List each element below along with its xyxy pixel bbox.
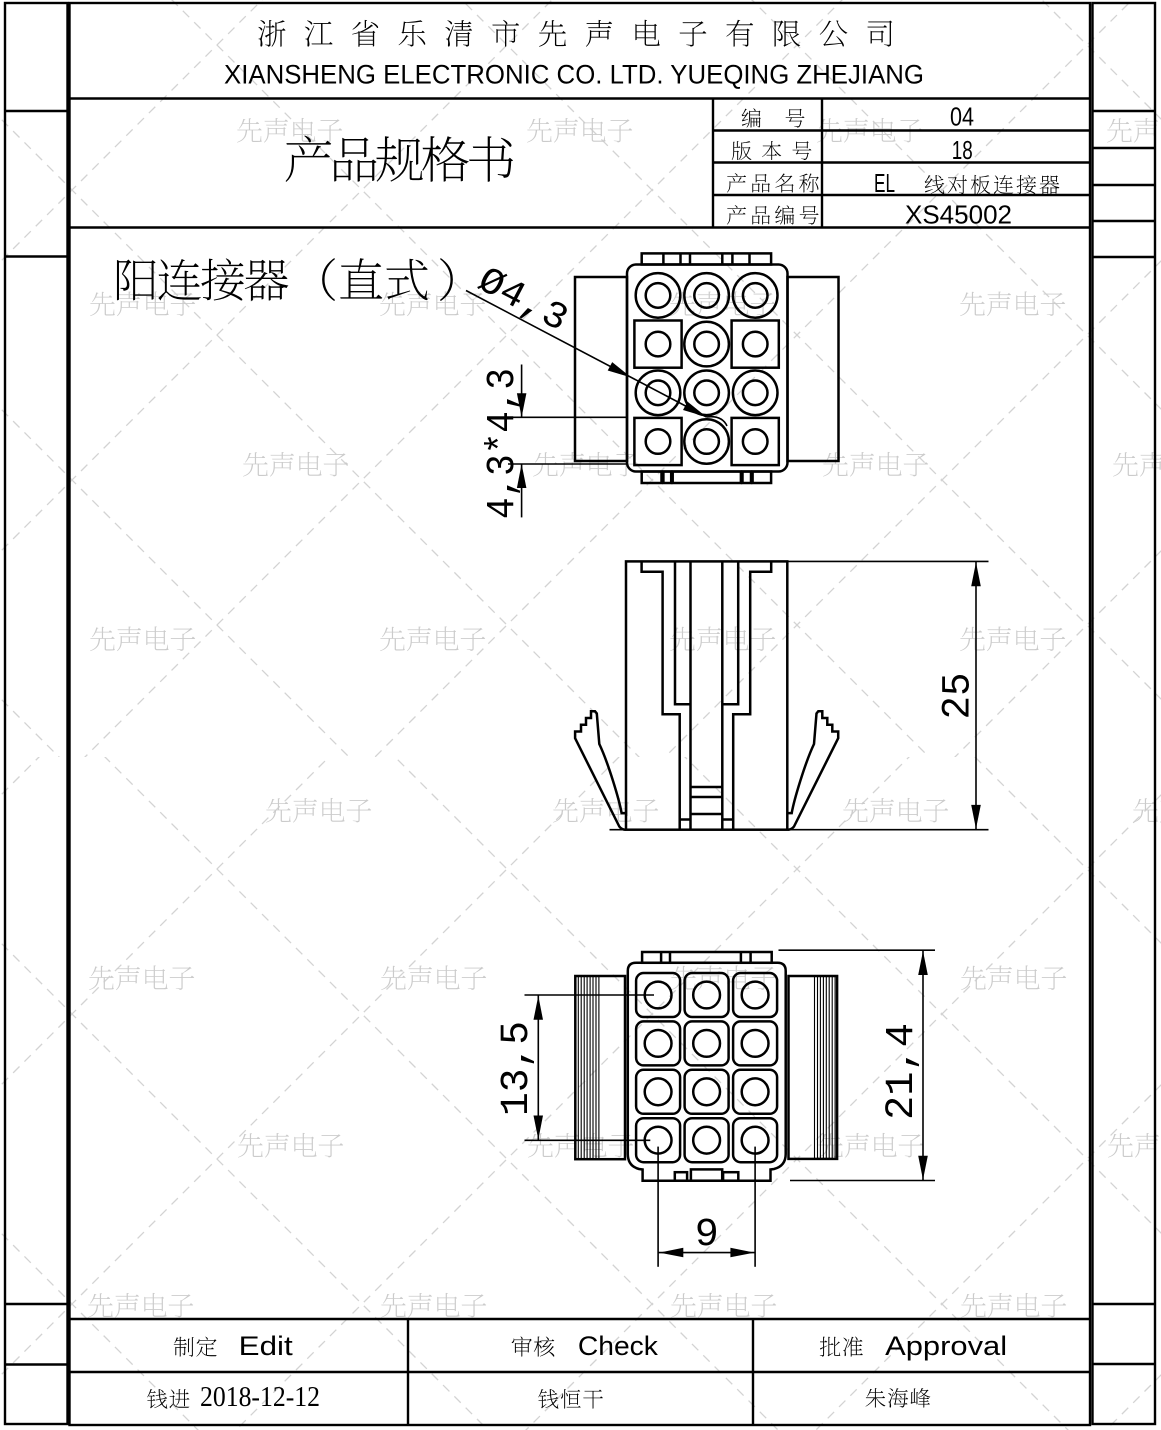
svg-text:XIANSHENG ELECTRONIC CO. LTD.: XIANSHENG ELECTRONIC CO. LTD. YUEQING ZH…: [224, 60, 924, 90]
svg-text:13,5: 13,5: [495, 1021, 540, 1116]
svg-text:9: 9: [695, 1213, 719, 1258]
svg-text:21,4: 21,4: [880, 1023, 925, 1120]
svg-text:Check: Check: [578, 1331, 659, 1361]
svg-text:18: 18: [952, 135, 973, 165]
svg-text:Ø4,3: Ø4,3: [470, 260, 574, 342]
svg-text:04: 04: [950, 102, 974, 132]
svg-text:Approval: Approval: [885, 1331, 1007, 1361]
svg-text:25: 25: [937, 673, 982, 720]
svg-text:EL: EL: [874, 168, 895, 198]
svg-text:XS45002: XS45002: [905, 200, 1012, 230]
svg-text:4,3*4,3: 4,3*4,3: [481, 368, 526, 519]
svg-text:2018-12-12: 2018-12-12: [200, 1382, 320, 1413]
svg-text:Edit: Edit: [239, 1331, 294, 1361]
